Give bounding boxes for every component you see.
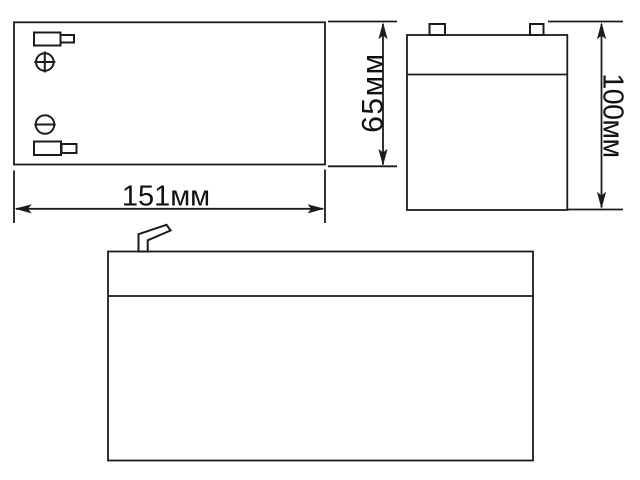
svg-text:100мм: 100мм: [597, 73, 629, 157]
svg-text:151мм: 151мм: [122, 181, 210, 213]
svg-text:65мм: 65мм: [357, 52, 390, 132]
